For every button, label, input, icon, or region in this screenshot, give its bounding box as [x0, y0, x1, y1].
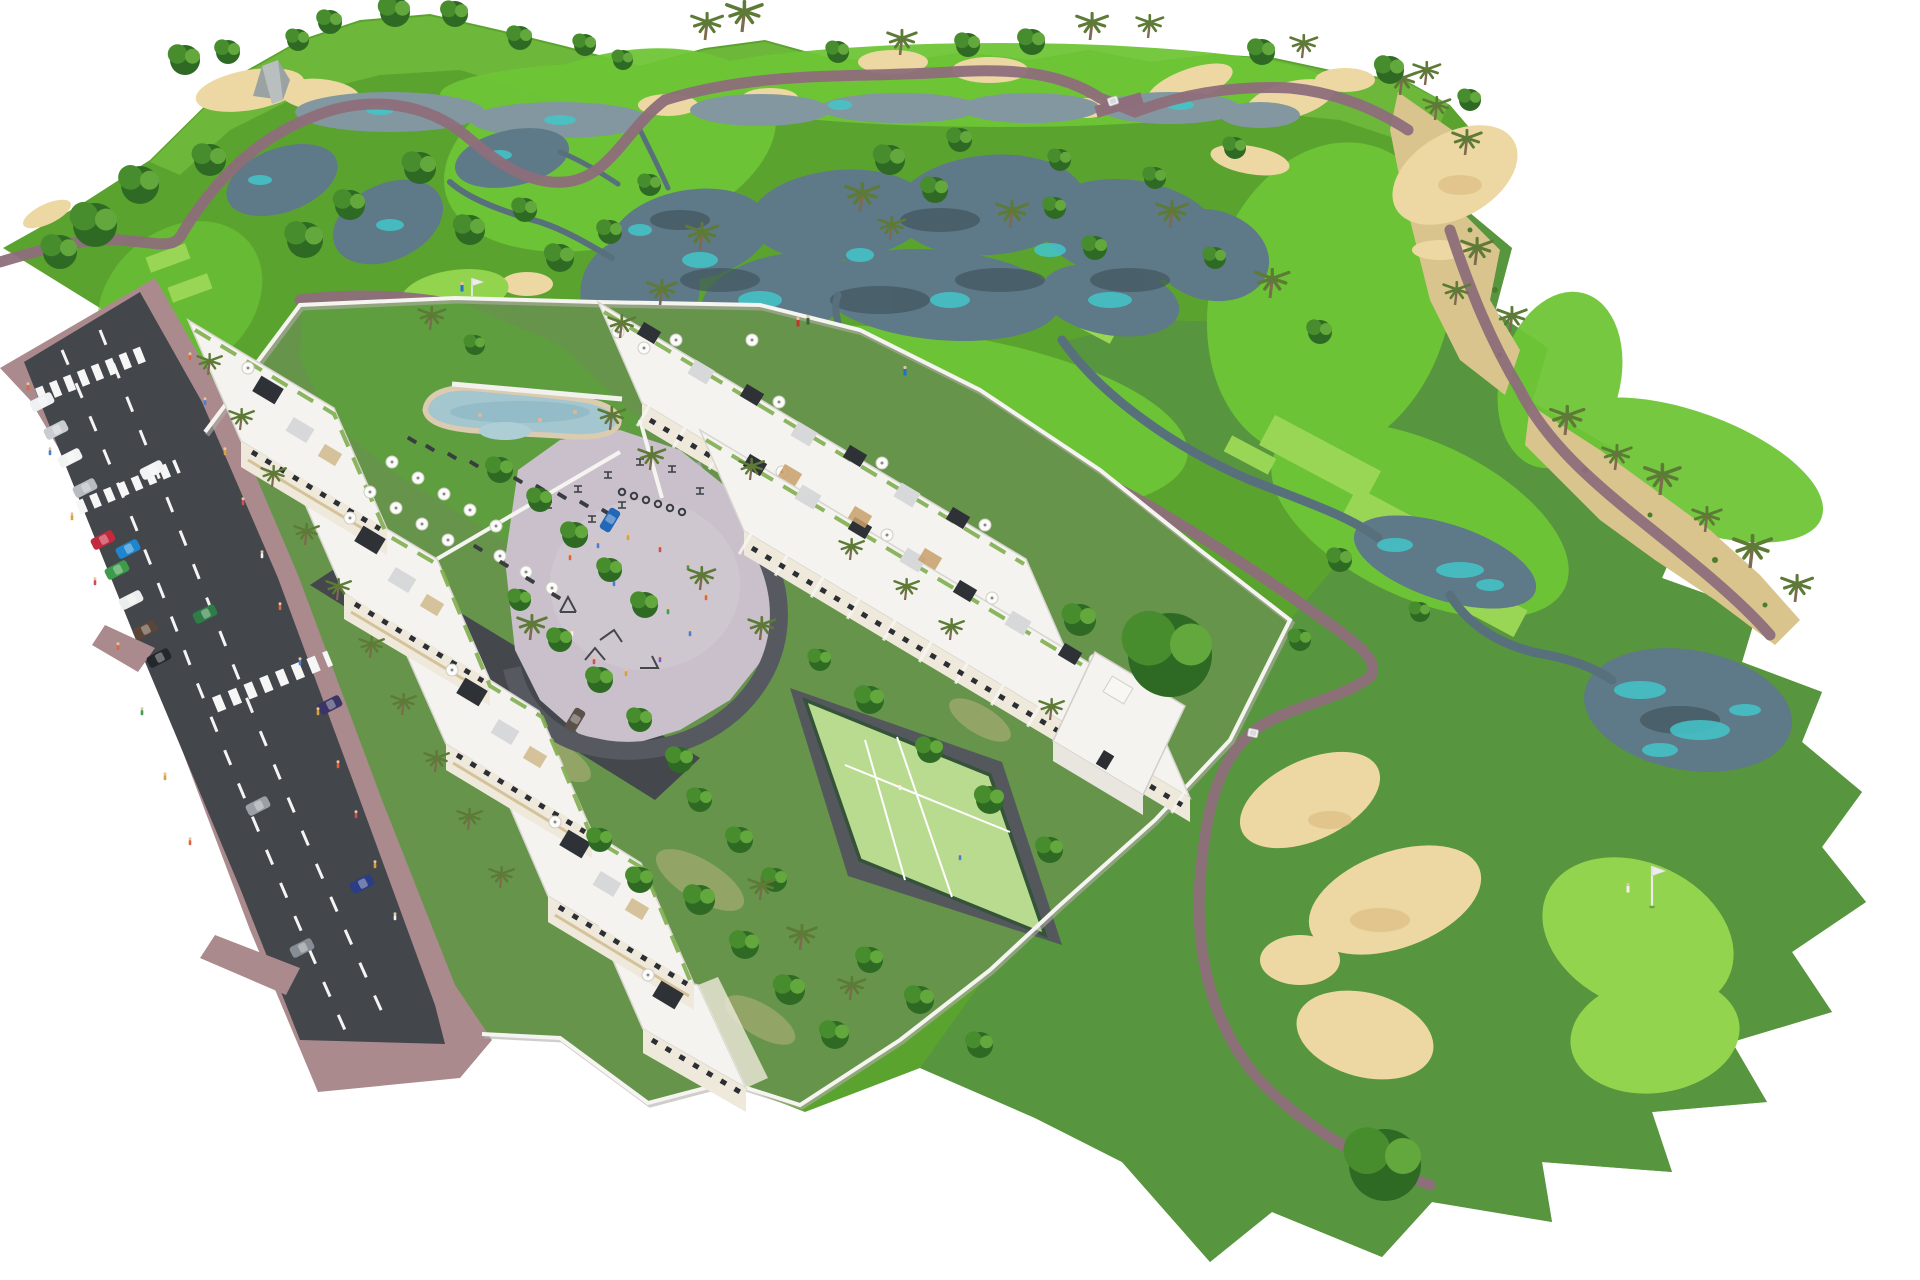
golf-cart [1247, 728, 1258, 738]
masterplan-rendering [0, 0, 1920, 1280]
scene-canvas [0, 0, 1920, 1280]
